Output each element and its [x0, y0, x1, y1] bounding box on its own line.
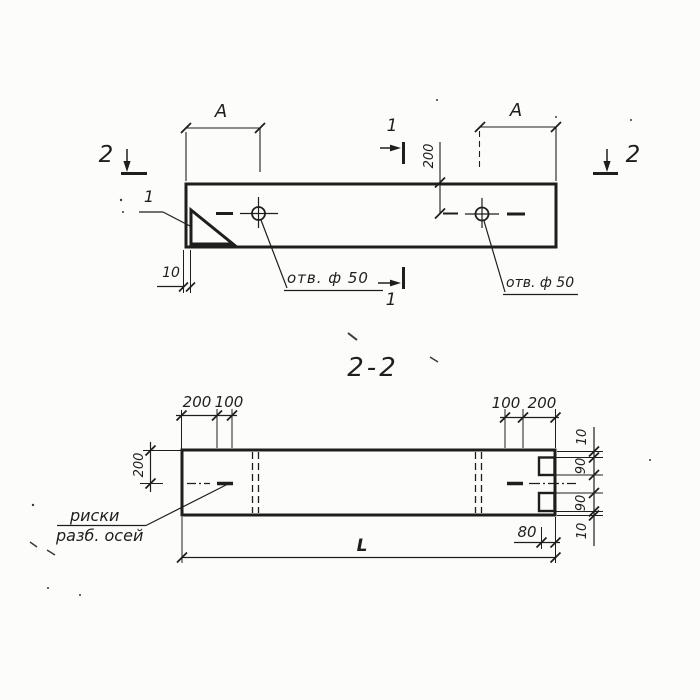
- drawing-canvas: A A 200 1 1 2 2 1 10 отв. ф 50 отв. ф 50…: [0, 0, 700, 700]
- dim-right-10-bottom: 10: [576, 514, 590, 548]
- dim-top-left-200: 200: [179, 395, 215, 410]
- section-1-label-top: 1: [384, 118, 400, 135]
- dim-80-label: 80: [513, 525, 541, 540]
- hole-right: [465, 198, 499, 228]
- section-mark-1-bottom: [378, 267, 404, 289]
- notch-lower: [539, 493, 555, 511]
- plan-view: [121, 122, 618, 295]
- section-1-label-bottom: 1: [383, 292, 399, 309]
- axis-note-line1: риски: [70, 508, 119, 524]
- hidden-hole-lines: [253, 452, 482, 513]
- arrow-right-icon: [390, 145, 401, 152]
- dims-top-left-lines: [176, 409, 237, 449]
- section-title: 2-2: [338, 355, 408, 381]
- dim-10-label: 10: [158, 266, 184, 280]
- section-beam-outline: [182, 450, 555, 515]
- dim-a-right-lines: [475, 122, 561, 181]
- section-2-label-left: 2: [93, 144, 119, 167]
- dims-top-right-lines: [500, 409, 561, 448]
- length-label: L: [348, 538, 376, 555]
- dim-top-right-100: 100: [491, 396, 521, 411]
- section-mark-1-top: [380, 142, 404, 164]
- drawing-linework: [0, 0, 700, 700]
- axis-note-line2: разб. осей: [56, 528, 143, 544]
- section-mark-2-right: [593, 149, 618, 174]
- hole-label-right: отв. ф 50: [506, 276, 574, 290]
- dim-right-90-top: 90: [575, 449, 589, 483]
- notch-upper: [539, 458, 555, 476]
- dim-top-left-100: 100: [214, 395, 244, 410]
- detail-1-leader: [139, 212, 190, 226]
- dim-a-left-label: A: [205, 103, 237, 121]
- dim-200-plan-label: 200: [423, 139, 437, 173]
- arrow-down-icon: [603, 161, 610, 172]
- arrow-down-icon: [123, 161, 130, 172]
- corner-plate-triangle: [191, 210, 233, 244]
- detail-1-label: 1: [141, 189, 157, 205]
- section-2-label-right: 2: [620, 144, 646, 167]
- dim-top-right-200: 200: [524, 396, 560, 411]
- section-mark-2-left: [121, 149, 147, 174]
- dim-a-left-lines: [181, 123, 265, 181]
- hole-label-left: отв. ф 50: [287, 271, 369, 286]
- hole-left: [240, 197, 278, 228]
- arrow-right-icon: [390, 280, 401, 287]
- plan-beam-outline: [186, 184, 556, 247]
- dim-a-right-label: A: [500, 102, 532, 120]
- dim-200-section-label: 200: [133, 447, 147, 483]
